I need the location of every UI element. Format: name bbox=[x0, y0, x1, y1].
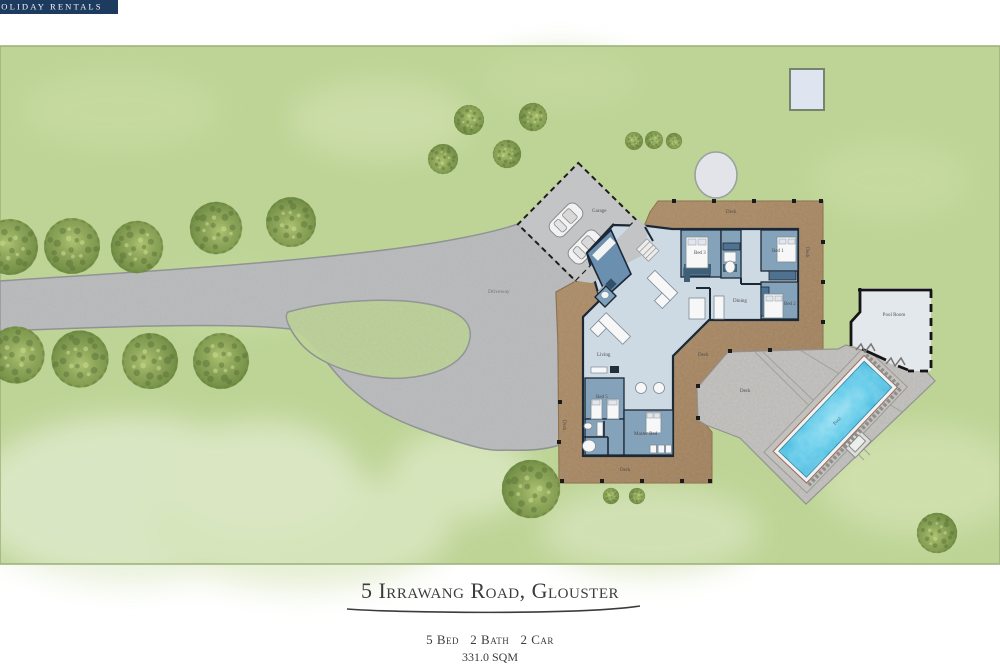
svg-text:5 Bed 2 Bath 2 Car: 5 Bed 2 Bath 2 Car bbox=[426, 632, 554, 647]
svg-text:Deck: Deck bbox=[740, 389, 751, 394]
svg-text:Deck: Deck bbox=[804, 247, 809, 258]
svg-text:Bed 2: Bed 2 bbox=[784, 302, 796, 307]
svg-text:5 Irrawang Road, Glouster: 5 Irrawang Road, Glouster bbox=[361, 578, 619, 603]
svg-text:Driveway: Driveway bbox=[488, 289, 510, 295]
svg-text:Deck: Deck bbox=[561, 420, 566, 431]
svg-text:Deck: Deck bbox=[620, 468, 631, 473]
svg-text:Dining: Dining bbox=[733, 299, 747, 304]
svg-text:Master Bed: Master Bed bbox=[634, 432, 658, 437]
svg-text:Living: Living bbox=[597, 353, 611, 358]
svg-text:Bed 1: Bed 1 bbox=[772, 249, 784, 254]
svg-text:HOLIDAY RENTALS: HOLIDAY RENTALS bbox=[0, 2, 103, 12]
svg-text:331.0 SQM: 331.0 SQM bbox=[462, 650, 518, 664]
svg-text:Bed 3: Bed 3 bbox=[694, 251, 706, 256]
svg-text:Pool Room: Pool Room bbox=[883, 313, 906, 318]
svg-text:Deck: Deck bbox=[726, 210, 737, 215]
svg-text:Deck: Deck bbox=[698, 353, 709, 358]
svg-text:Garage: Garage bbox=[592, 209, 607, 214]
svg-text:Bed 5: Bed 5 bbox=[596, 395, 608, 400]
